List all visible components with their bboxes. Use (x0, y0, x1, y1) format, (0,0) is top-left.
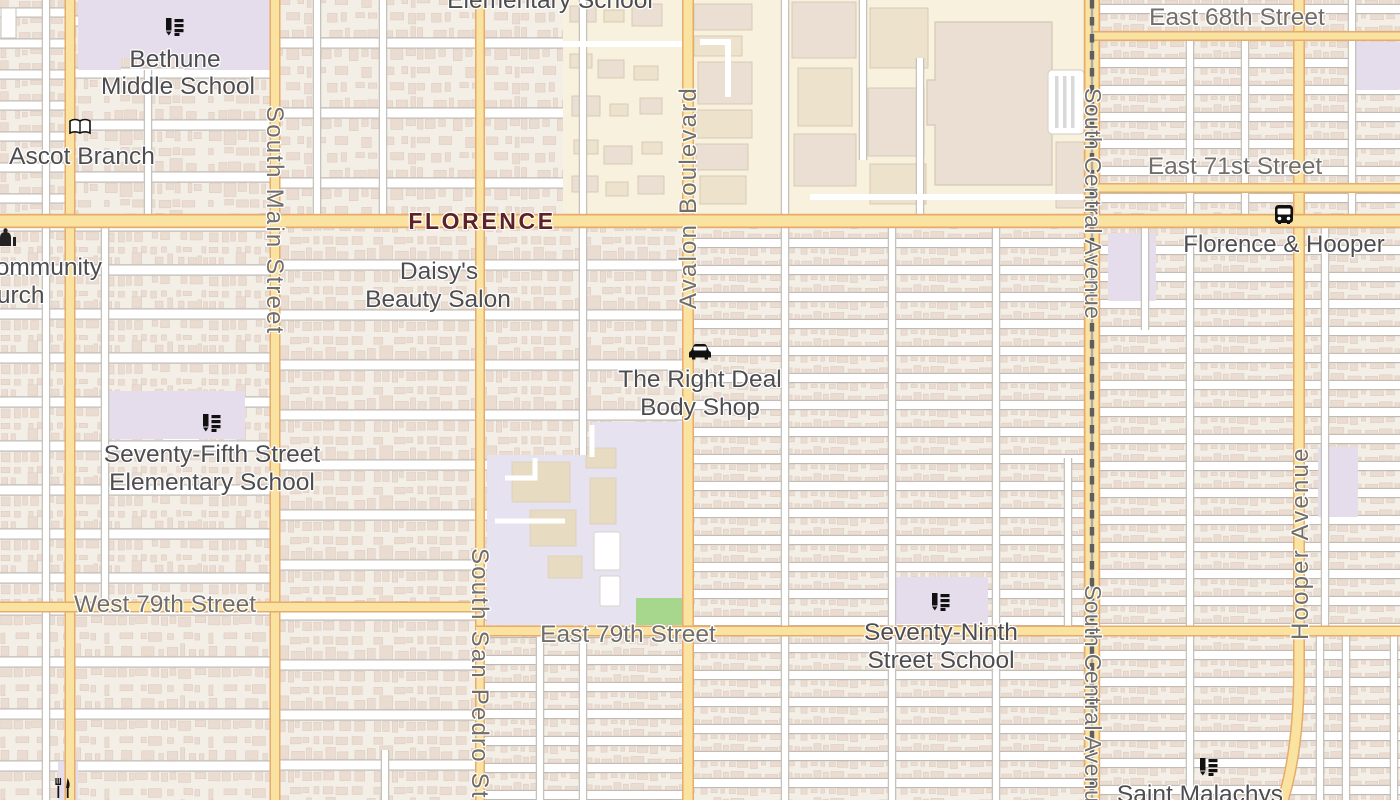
svg-text:West 79th Street: West 79th Street (74, 591, 256, 618)
svg-text:Ascot Branch: Ascot Branch (9, 143, 155, 170)
svg-text:Avalon Boulevard: Avalon Boulevard (675, 86, 702, 309)
svg-text:Saint Malachys: Saint Malachys (1117, 781, 1283, 800)
svg-text:Middle School: Middle School (101, 73, 255, 100)
svg-text:South San Pedro Street: South San Pedro Street (466, 548, 493, 800)
svg-text:Florence & Hooper: Florence & Hooper (1183, 231, 1384, 258)
svg-text:Street School: Street School (867, 647, 1014, 674)
svg-text:FLORENCE: FLORENCE (408, 208, 555, 234)
svg-text:Body Shop: Body Shop (640, 394, 760, 421)
svg-text:Daisy's: Daisy's (400, 258, 478, 285)
svg-text:Elementary School: Elementary School (109, 469, 315, 496)
svg-text:Bethune: Bethune (129, 46, 220, 73)
svg-text:South Central Avenue: South Central Avenue (1080, 88, 1106, 319)
svg-text:Beauty Salon: Beauty Salon (365, 286, 511, 313)
svg-text:Hooper Avenue: Hooper Avenue (1287, 446, 1314, 640)
svg-text:East 68th Street: East 68th Street (1149, 4, 1325, 31)
svg-text:Elementary School: Elementary School (447, 0, 653, 14)
svg-text:East 71st Street: East 71st Street (1148, 153, 1323, 180)
svg-text:South Main Street: South Main Street (261, 106, 288, 336)
svg-text:East 79th Street: East 79th Street (540, 621, 716, 648)
svg-text:Seventy-Fifth Street: Seventy-Fifth Street (104, 441, 321, 468)
svg-text:South Central Avenue: South Central Avenue (1080, 585, 1106, 800)
svg-text:The Right Deal: The Right Deal (618, 366, 781, 393)
svg-text:Church: Church (0, 282, 44, 309)
svg-text:Seventy-Ninth: Seventy-Ninth (864, 619, 1018, 646)
svg-text:Community: Community (0, 254, 103, 281)
